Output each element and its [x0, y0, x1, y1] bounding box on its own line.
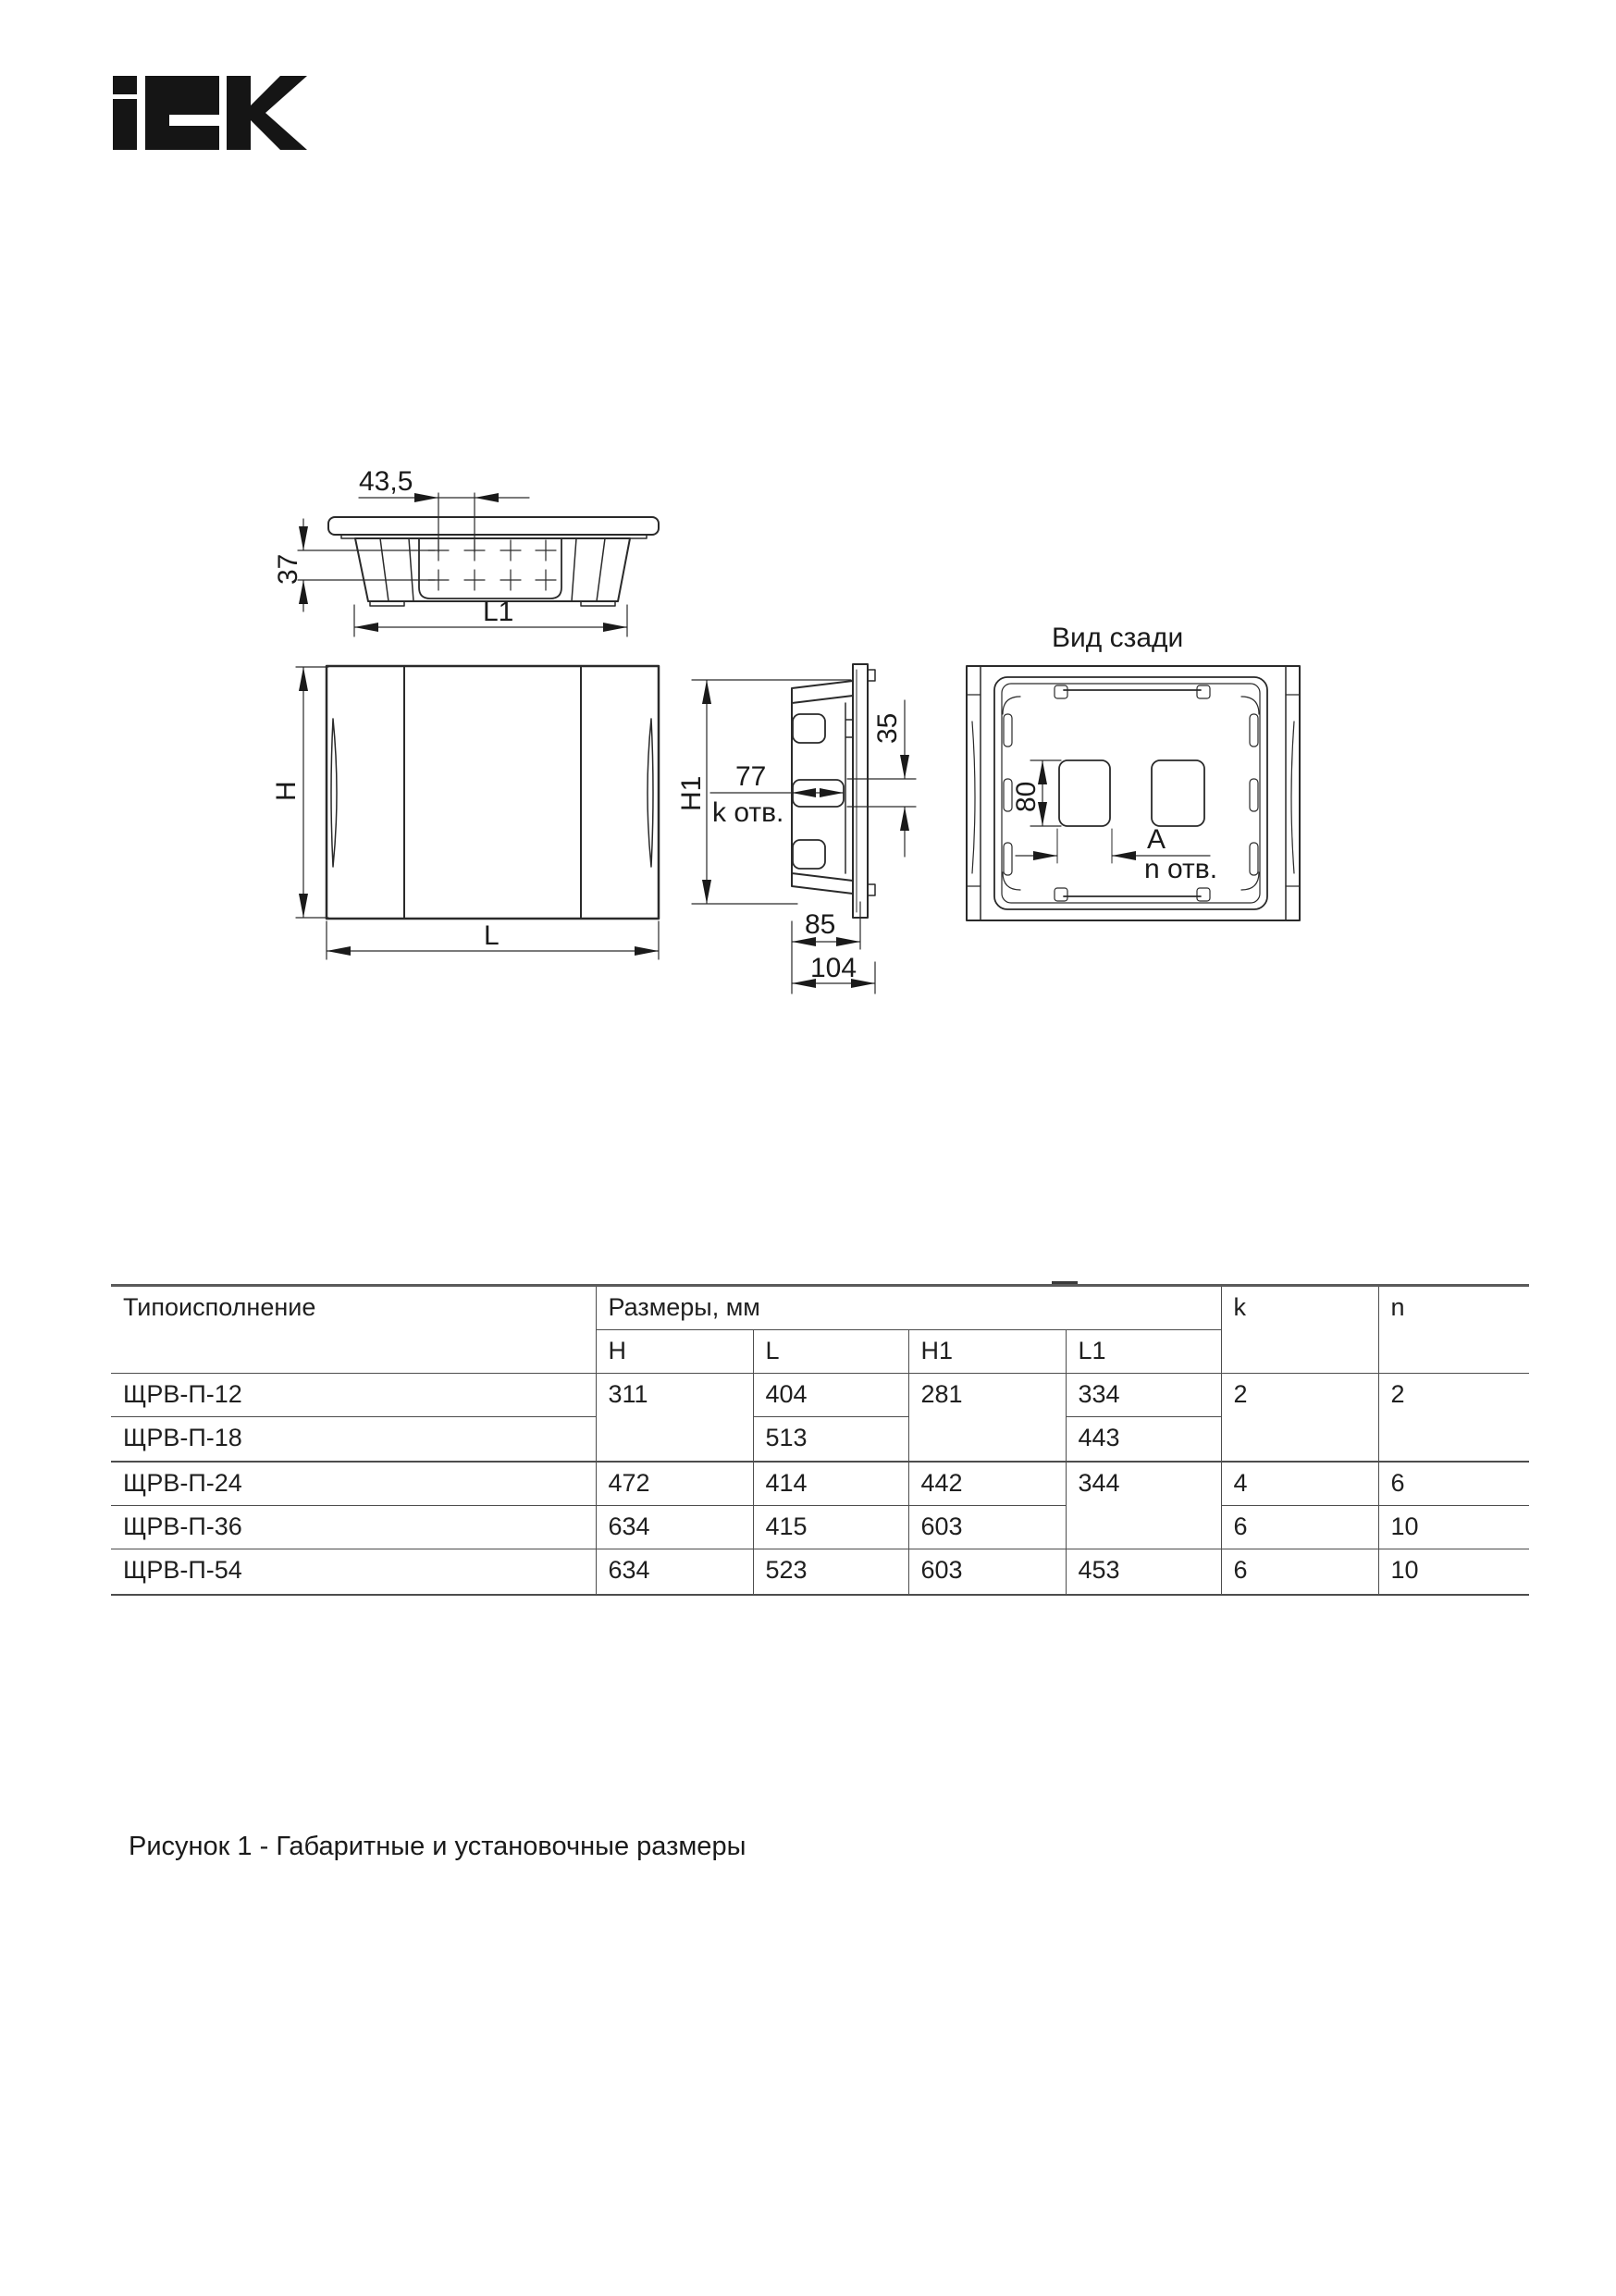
cell-name: ЩРВ-П-54 [111, 1549, 596, 1595]
col-header-L1: L1 [1066, 1330, 1221, 1374]
table-row: ЩРВ-П-12 311 404 281 334 2 2 [111, 1374, 1529, 1417]
cell-L1: 453 [1066, 1549, 1221, 1595]
dim-slot-width [710, 788, 844, 797]
cell-H1: 281 [908, 1374, 1066, 1462]
cell-H: 634 [596, 1549, 753, 1595]
left-handle-slot [331, 719, 337, 867]
cell-L: 415 [753, 1506, 908, 1549]
figure-caption: Рисунок 1 - Габаритные и установочные ра… [129, 1832, 746, 1862]
table-row: ЩРВ-П-24 472 414 442 344 4 6 [111, 1462, 1529, 1506]
col-header-dims-group: Размеры, мм [596, 1286, 1221, 1330]
cell-L1: 443 [1066, 1417, 1221, 1462]
table-row: ЩРВ-П-54 634 523 603 453 6 10 [111, 1549, 1529, 1595]
label-front-width: L [484, 920, 500, 951]
label-depth-total: 104 [810, 953, 857, 983]
header-row-1: Типоисполнение Размеры, мм k n [111, 1286, 1529, 1330]
cell-name: ЩРВ-П-36 [111, 1506, 596, 1549]
cell-n: 2 [1378, 1374, 1529, 1462]
cell-H1: 603 [908, 1549, 1066, 1595]
cell-L: 404 [753, 1374, 908, 1417]
label-top-width: L1 [483, 597, 513, 627]
label-front-height: H [271, 781, 302, 801]
dim-top-pitch-y [298, 519, 435, 611]
cell-n: 10 [1378, 1506, 1529, 1549]
col-header-k: k [1221, 1286, 1378, 1374]
cell-k: 6 [1221, 1549, 1378, 1595]
mounting-crosses [428, 540, 556, 590]
col-header-H1: H1 [908, 1330, 1066, 1374]
dimensions-table: Типоисполнение Размеры, мм k n H L H1 L1… [111, 1284, 1529, 1596]
label-hole-pitch: A [1147, 824, 1166, 855]
cell-n: 6 [1378, 1462, 1529, 1506]
cell-k: 6 [1221, 1506, 1378, 1549]
cell-H: 311 [596, 1374, 753, 1462]
label-slot-height: 35 [872, 713, 903, 744]
label-slot-width: 77 [735, 761, 766, 792]
cell-L: 513 [753, 1417, 908, 1462]
rear-view-title: Вид сзади [1052, 623, 1183, 653]
cell-name: ЩРВ-П-18 [111, 1417, 596, 1462]
cell-k: 2 [1221, 1374, 1378, 1462]
dimension-drawing: Вид сзади 43,5 37 L1 H L H1 77 k отв. 35… [0, 0, 1616, 1045]
cell-k: 4 [1221, 1462, 1378, 1506]
cell-H: 634 [596, 1506, 753, 1549]
cell-H: 472 [596, 1462, 753, 1506]
label-depth-box: 85 [805, 909, 835, 940]
dim-top-pitch-x [359, 493, 529, 552]
col-header-type: Типоисполнение [111, 1286, 596, 1374]
label-top-pitch-y: 37 [273, 554, 303, 585]
cell-L: 523 [753, 1549, 908, 1595]
cell-n: 10 [1378, 1549, 1529, 1595]
col-header-H: H [596, 1330, 753, 1374]
table-row: ЩРВ-П-36 634 415 603 6 10 [111, 1506, 1529, 1549]
col-header-n: n [1378, 1286, 1529, 1374]
right-handle-slot [648, 719, 653, 867]
cell-L: 414 [753, 1462, 908, 1506]
knockout-left [1059, 760, 1110, 826]
cell-name: ЩРВ-П-12 [111, 1374, 596, 1417]
cell-H1: 603 [908, 1506, 1066, 1549]
label-side-height: H1 [676, 776, 707, 811]
label-slot-count: k отв. [712, 797, 783, 828]
label-knockout-height: 80 [1011, 782, 1042, 812]
cell-L1: 344 [1066, 1462, 1221, 1549]
label-top-pitch-x: 43,5 [359, 466, 413, 497]
rear-side-slots [1004, 714, 1258, 875]
top-view [298, 493, 659, 636]
front-view [296, 666, 659, 959]
label-hole-count: n отв. [1144, 854, 1217, 884]
cell-L1: 334 [1066, 1374, 1221, 1417]
col-header-L: L [753, 1330, 908, 1374]
datasheet-page: Вид сзади 43,5 37 L1 H L H1 77 k отв. 35… [0, 0, 1616, 2296]
knockout-right [1152, 760, 1204, 826]
cell-name: ЩРВ-П-24 [111, 1462, 596, 1506]
cell-H1: 442 [908, 1462, 1066, 1506]
